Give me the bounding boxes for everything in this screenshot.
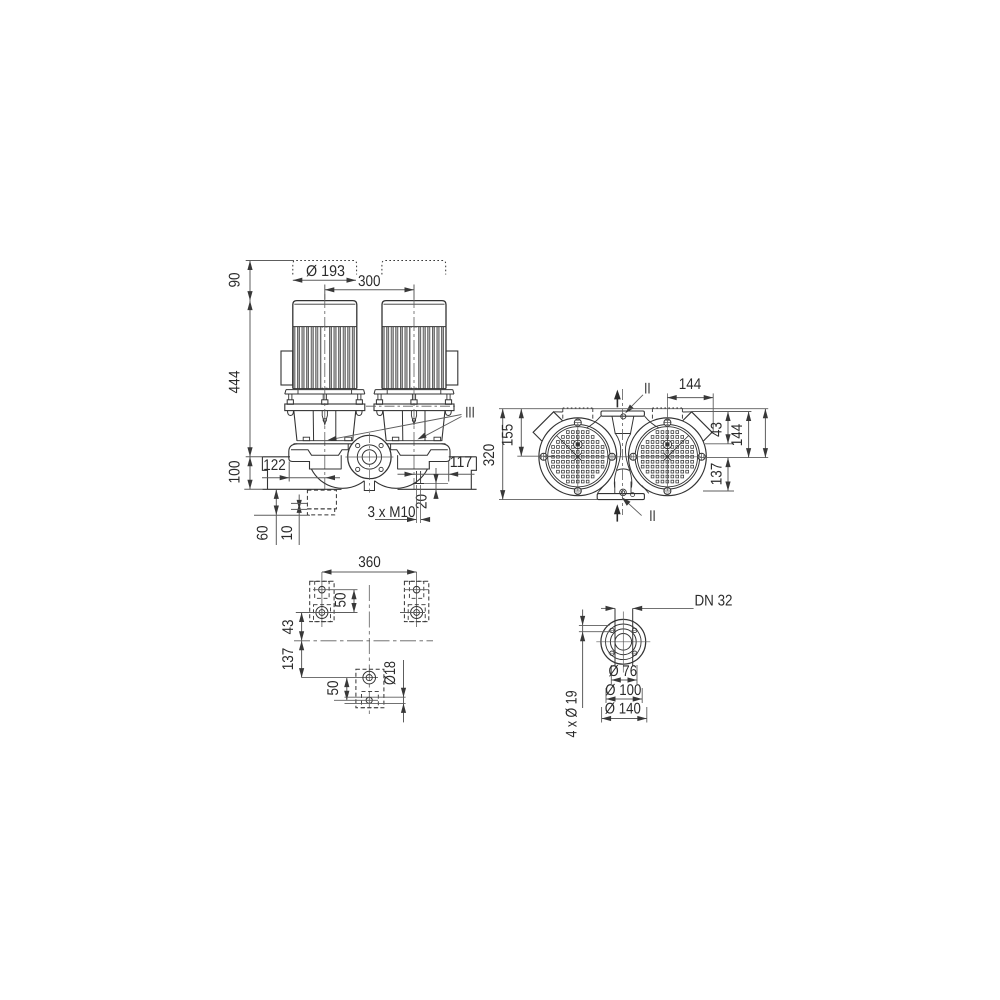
- svg-text:10: 10: [279, 525, 296, 540]
- svg-text:144: 144: [679, 376, 702, 393]
- svg-text:Ø 76: Ø 76: [609, 663, 638, 680]
- svg-text:43: 43: [280, 620, 297, 635]
- svg-text:444: 444: [227, 370, 244, 393]
- svg-text:20: 20: [414, 494, 431, 509]
- svg-text:Ø 140: Ø 140: [605, 701, 641, 718]
- svg-text:155: 155: [500, 424, 517, 447]
- svg-text:Ø 193: Ø 193: [306, 263, 345, 280]
- svg-text:117: 117: [450, 454, 473, 471]
- svg-text:100: 100: [227, 460, 244, 483]
- svg-text:50: 50: [332, 592, 349, 607]
- svg-text:122: 122: [263, 457, 286, 474]
- svg-text:DN 32: DN 32: [695, 593, 733, 610]
- svg-text:137: 137: [709, 463, 726, 486]
- svg-text:43: 43: [709, 422, 726, 437]
- svg-text:50: 50: [325, 680, 342, 695]
- svg-text:Ø 100: Ø 100: [605, 682, 641, 699]
- svg-text:137: 137: [280, 648, 297, 671]
- svg-text:90: 90: [227, 272, 244, 287]
- svg-text:II: II: [649, 508, 656, 525]
- svg-text:300: 300: [358, 273, 381, 290]
- svg-text:II: II: [644, 380, 651, 397]
- svg-text:360: 360: [358, 554, 381, 571]
- svg-text:Ø18: Ø18: [382, 661, 399, 685]
- svg-text:III: III: [465, 405, 475, 422]
- svg-text:144: 144: [729, 423, 746, 446]
- svg-text:60: 60: [255, 525, 272, 540]
- svg-text:4 x Ø 19: 4 x Ø 19: [563, 691, 580, 738]
- svg-text:320: 320: [481, 443, 498, 466]
